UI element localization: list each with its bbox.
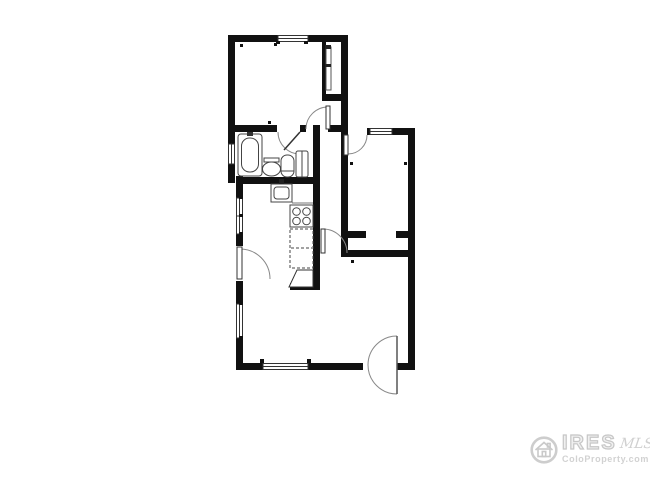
refrigerator bbox=[289, 270, 313, 287]
bathtub bbox=[238, 132, 262, 176]
ires-watermark: IRES MLS ColoProperty.com © IRES bbox=[529, 433, 650, 468]
dishwasher-space bbox=[290, 229, 313, 268]
toilet bbox=[281, 155, 294, 177]
walls bbox=[228, 35, 415, 370]
house-icon bbox=[536, 443, 553, 457]
stove bbox=[290, 205, 313, 227]
wall-left-lower-c bbox=[236, 281, 243, 304]
wall-top-left bbox=[228, 35, 278, 42]
wall-bed2-bottom bbox=[341, 250, 408, 257]
window-living-bottom bbox=[263, 364, 308, 370]
coloproperty-text: ColoProperty.com bbox=[562, 455, 650, 464]
mls-script-text: MLS bbox=[619, 437, 650, 451]
wall-closet2-left-stub bbox=[348, 231, 366, 238]
window-bed2-top bbox=[370, 129, 392, 135]
ires-watermark-text: IRES MLS ColoProperty.com bbox=[562, 433, 650, 464]
wall-closet1-inner bbox=[322, 42, 326, 96]
wall-bed1-bottom-b bbox=[300, 125, 306, 132]
wall-bottom-c bbox=[397, 363, 415, 370]
wall-left-lower-b bbox=[236, 234, 243, 246]
ires-brand-text: IRES bbox=[562, 433, 617, 453]
wall-bath-bottom bbox=[236, 177, 320, 184]
wall-closet1-bottom bbox=[322, 94, 341, 101]
floor-plan-image: IRES MLS ColoProperty.com © IRES bbox=[0, 0, 650, 488]
wall-bottom-b bbox=[308, 363, 363, 370]
bathroom-fixtures bbox=[238, 132, 308, 177]
door-main-entry bbox=[368, 336, 397, 394]
door-bedroom2 bbox=[344, 135, 367, 155]
floor-plan-svg bbox=[0, 0, 650, 488]
bathroom-sink bbox=[263, 158, 281, 176]
wall-right-lower bbox=[408, 128, 415, 370]
wall-hall-left bbox=[313, 125, 320, 290]
wall-closet2-right-stub bbox=[396, 231, 408, 238]
door-side-entry bbox=[237, 247, 270, 279]
window-bathroom bbox=[229, 144, 235, 164]
window-living-left bbox=[237, 304, 243, 338]
door-bathroom bbox=[278, 132, 300, 154]
kitchen-fixtures bbox=[271, 179, 313, 287]
wall-left-upper-2 bbox=[228, 164, 235, 183]
ires-logo-icon bbox=[529, 435, 559, 465]
closet1-sliding-door bbox=[325, 45, 331, 90]
wall-left-lower-d bbox=[236, 338, 243, 370]
window-bed1-top bbox=[278, 36, 308, 42]
bathroom-cabinet bbox=[296, 151, 308, 177]
wall-bed1-bottom-a bbox=[228, 125, 277, 132]
